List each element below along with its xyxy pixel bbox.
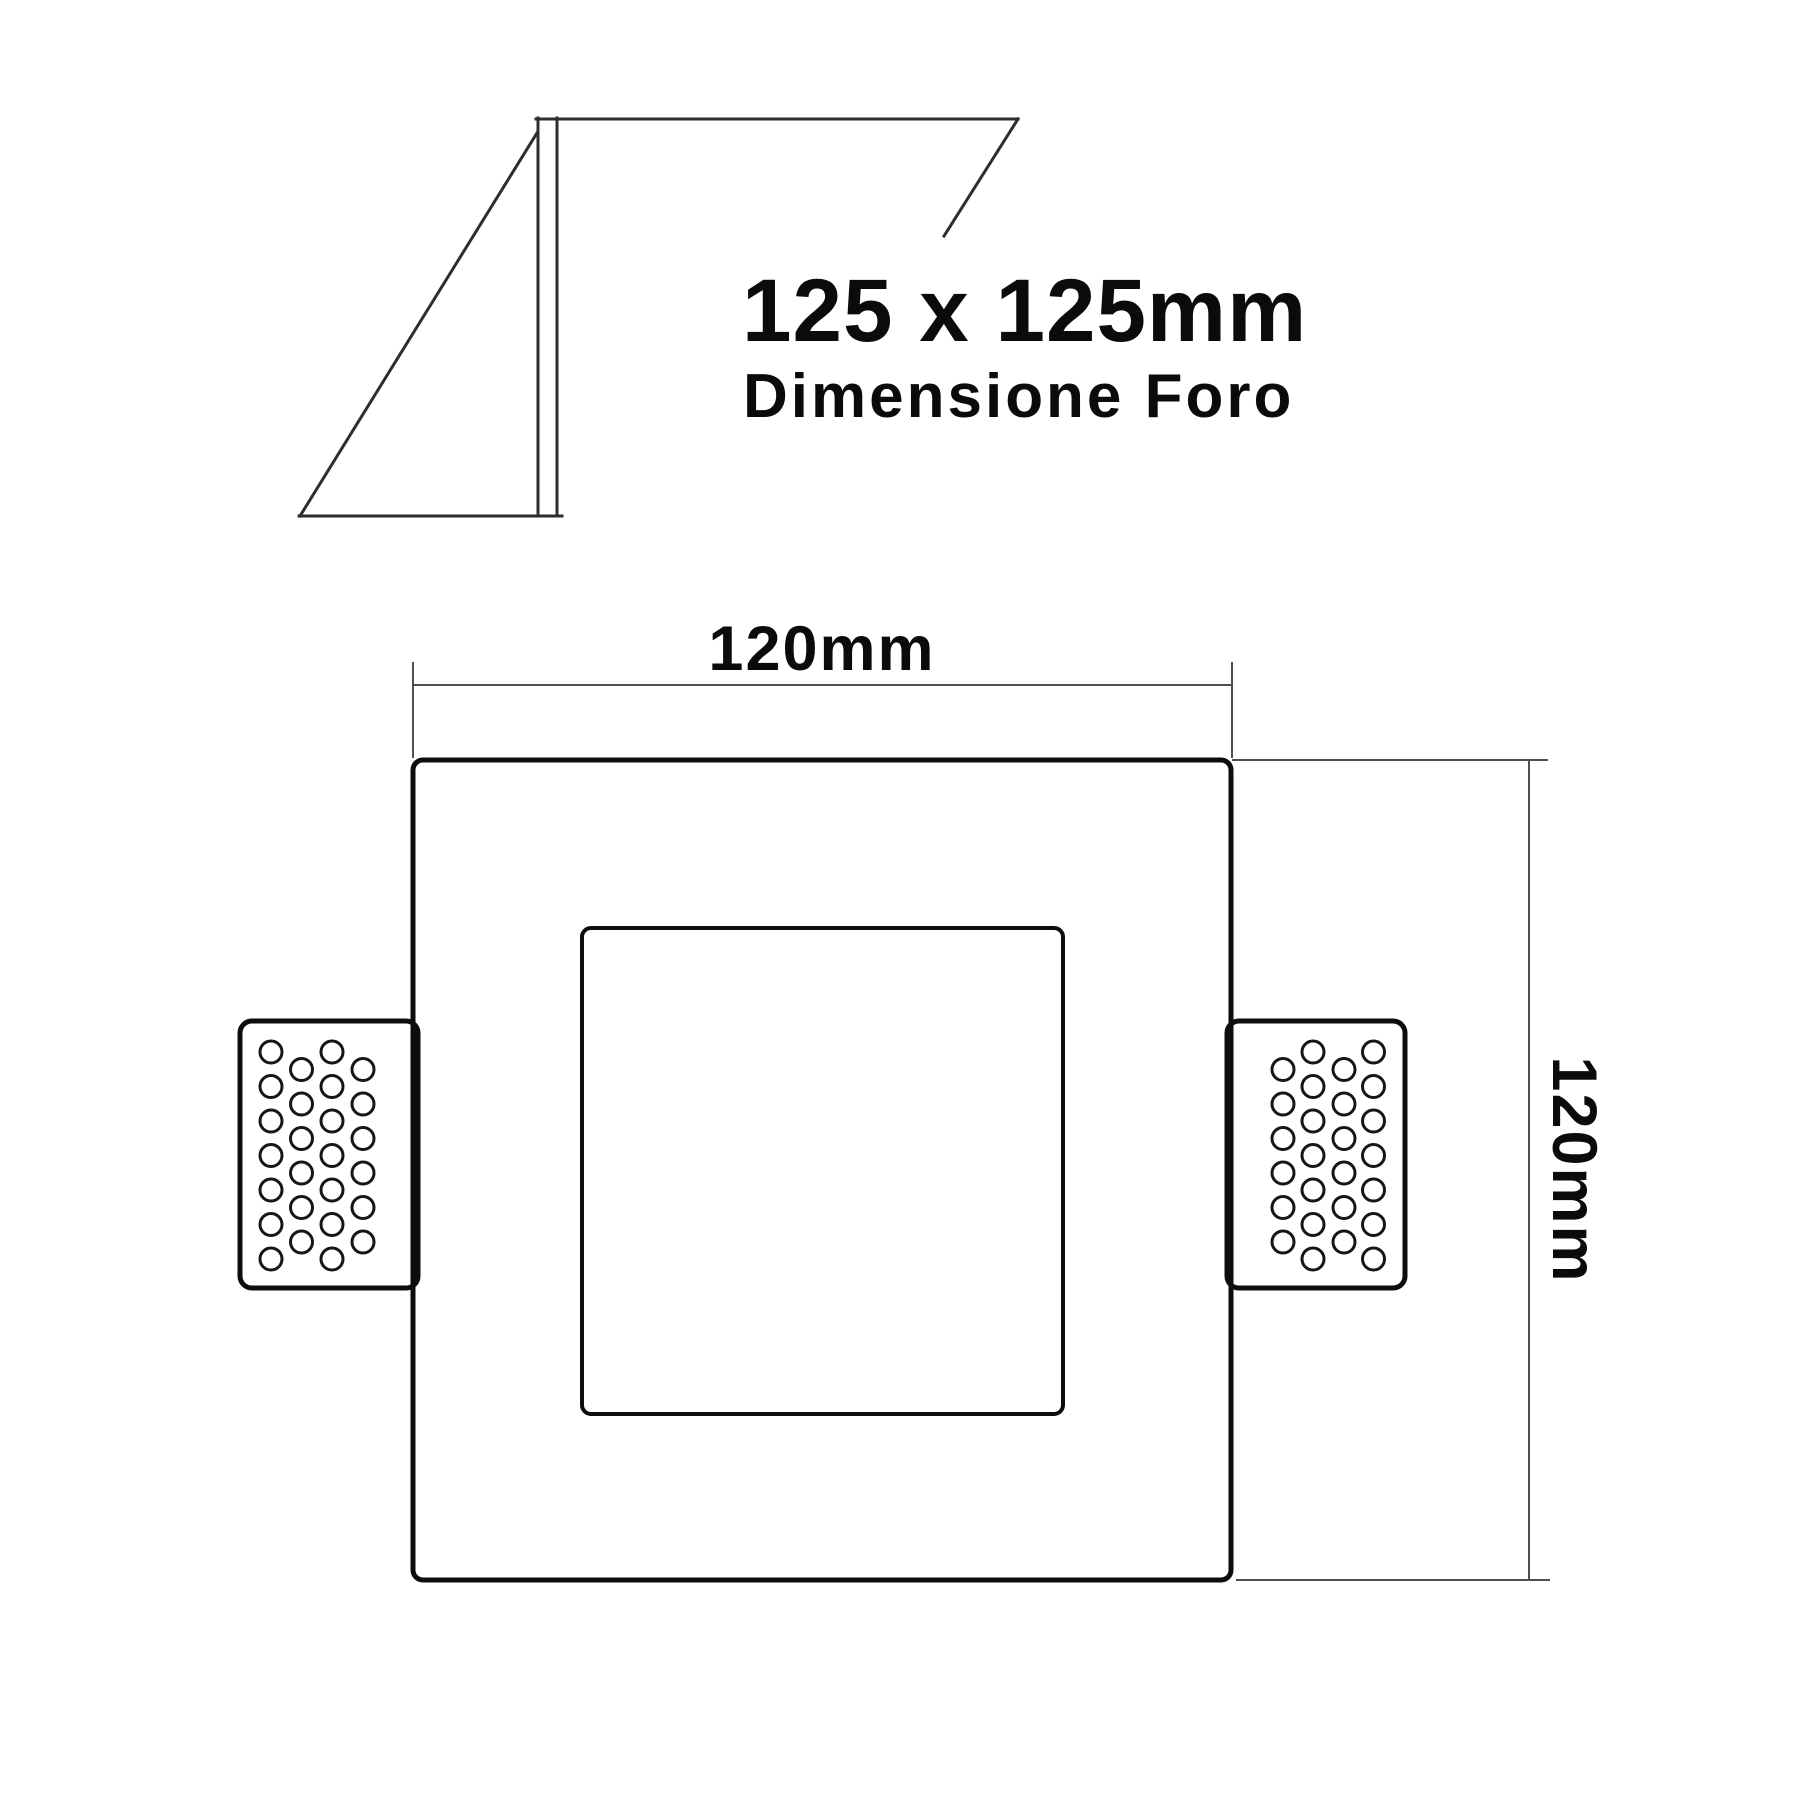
- perforation-dot: [291, 1128, 313, 1150]
- perforation-dot: [321, 1145, 343, 1167]
- perforation-dot: [291, 1059, 313, 1081]
- perforation-dot: [321, 1214, 343, 1236]
- perforation-dot: [1363, 1076, 1385, 1098]
- perforation-dot: [291, 1231, 313, 1253]
- right-dimension-label: 120mm: [1539, 1056, 1609, 1283]
- perforation-dot: [321, 1041, 343, 1063]
- section-right-diagonal: [944, 119, 1018, 236]
- perforation-dot: [1333, 1162, 1355, 1184]
- perforation-dot: [260, 1041, 282, 1063]
- perforation-dot: [1363, 1041, 1385, 1063]
- fixture-front-view: [240, 760, 1405, 1580]
- perforation-dot: [1272, 1128, 1294, 1150]
- fixture-inner-aperture: [582, 928, 1063, 1414]
- diagram-canvas: 125 x 125mm Dimensione Foro 120mm 120mm: [0, 0, 1800, 1800]
- perforation-dot: [1363, 1145, 1385, 1167]
- perforation-dot: [1302, 1145, 1324, 1167]
- perforation-dot: [1272, 1231, 1294, 1253]
- left-tab-perforations: [260, 1041, 374, 1270]
- perforation-dot: [260, 1110, 282, 1132]
- perforation-dot: [291, 1197, 313, 1219]
- perforation-dot: [260, 1145, 282, 1167]
- perforation-dot: [321, 1110, 343, 1132]
- perforation-dot: [321, 1248, 343, 1270]
- perforation-dot: [260, 1179, 282, 1201]
- perforation-dot: [291, 1093, 313, 1115]
- perforation-dot: [352, 1197, 374, 1219]
- top-dimension-label: 120mm: [708, 614, 935, 684]
- perforation-dot: [352, 1128, 374, 1150]
- perforation-dot: [352, 1162, 374, 1184]
- perforation-dot: [1333, 1197, 1355, 1219]
- perforation-dot: [321, 1179, 343, 1201]
- perforation-dot: [1333, 1093, 1355, 1115]
- perforation-dot: [1302, 1214, 1324, 1236]
- perforation-dot: [1363, 1110, 1385, 1132]
- perforation-dot: [1302, 1110, 1324, 1132]
- perforation-dot: [1272, 1162, 1294, 1184]
- perforation-dot: [321, 1076, 343, 1098]
- perforation-dot: [260, 1214, 282, 1236]
- perforation-dot: [1302, 1179, 1324, 1201]
- product-dimension-diagram: 125 x 125mm Dimensione Foro 120mm 120mm: [0, 0, 1800, 1800]
- hole-size-label: 125 x 125mm: [742, 260, 1307, 360]
- perforation-dot: [352, 1059, 374, 1081]
- fixture-outer-frame: [413, 760, 1231, 1580]
- perforation-dot: [1272, 1093, 1294, 1115]
- perforation-dot: [1302, 1248, 1324, 1270]
- perforation-dot: [1333, 1231, 1355, 1253]
- perforation-dot: [1272, 1197, 1294, 1219]
- perforation-dot: [1333, 1059, 1355, 1081]
- perforation-dot: [1363, 1214, 1385, 1236]
- perforation-dot: [1302, 1041, 1324, 1063]
- perforation-dot: [260, 1076, 282, 1098]
- perforation-dot: [291, 1162, 313, 1184]
- perforation-dot: [352, 1231, 374, 1253]
- perforation-dot: [1272, 1059, 1294, 1081]
- perforation-dot: [1363, 1248, 1385, 1270]
- right-tab-perforations: [1272, 1041, 1385, 1270]
- hole-size-caption: Dimensione Foro: [743, 362, 1294, 431]
- perforation-dot: [352, 1093, 374, 1115]
- perforation-dot: [260, 1248, 282, 1270]
- perforation-dot: [1302, 1076, 1324, 1098]
- perforation-dot: [1333, 1128, 1355, 1150]
- perforation-dot: [1363, 1179, 1385, 1201]
- top-dimension: 120mm: [413, 614, 1232, 758]
- section-left-diagonal: [300, 133, 537, 516]
